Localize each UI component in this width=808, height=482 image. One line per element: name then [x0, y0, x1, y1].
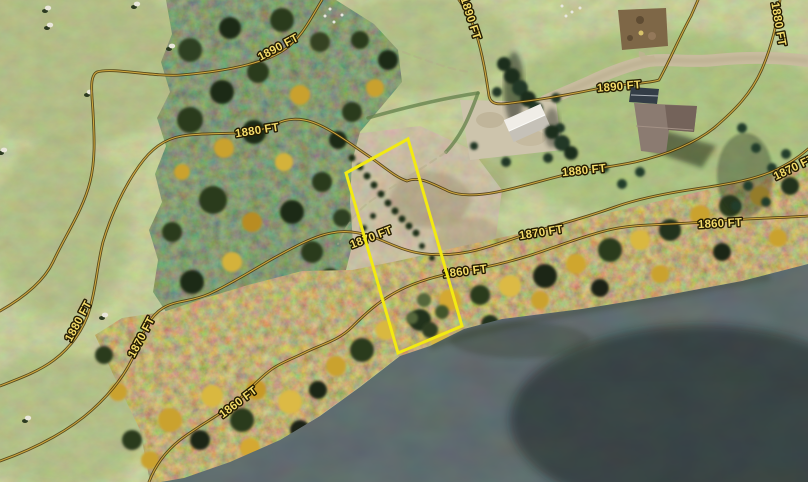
contour-label-1860-a: 1860 FT	[698, 217, 743, 231]
aerial-map[interactable]: 1890 FT 1890 FT 1890 FT 1880 FT 1880 FT …	[0, 0, 808, 482]
map-viewport[interactable]: 1890 FT 1890 FT 1890 FT 1880 FT 1880 FT …	[0, 0, 808, 482]
dirt-garden-patch	[618, 8, 668, 50]
